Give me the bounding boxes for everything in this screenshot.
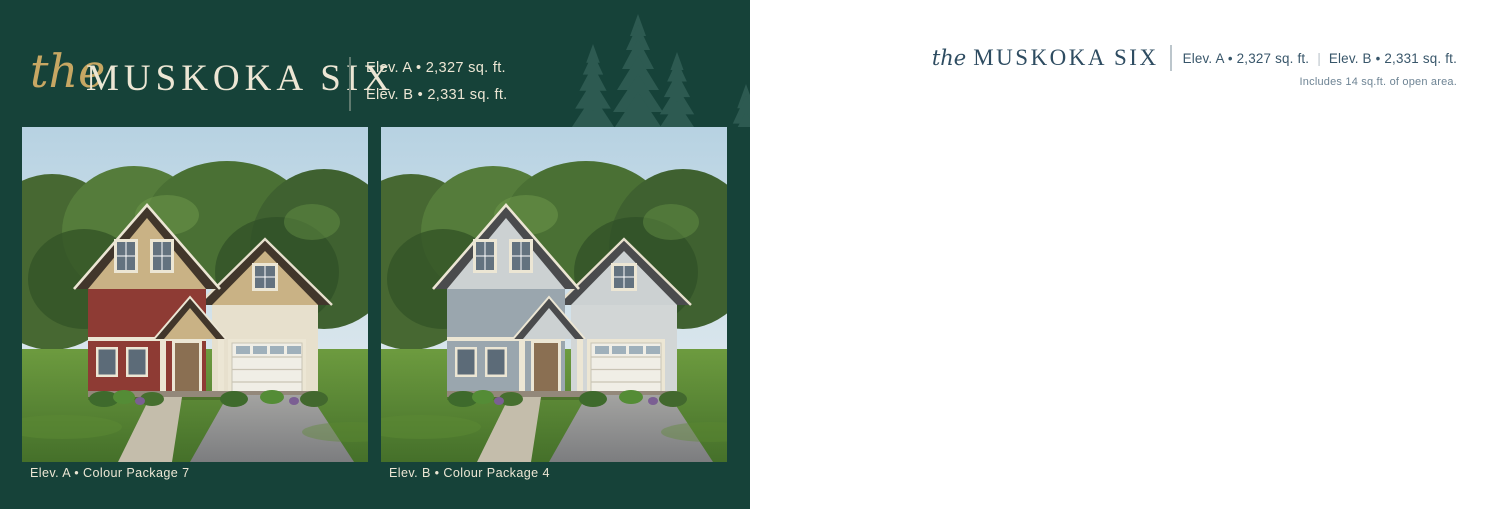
title-script-word: the [932, 46, 966, 70]
brochure-page: the MUSKOKA SIX Elev. A • 2,327 sq. ft. … [0, 0, 1500, 509]
elevation-a-caption: Elev. A • Colour Package 7 [30, 466, 190, 480]
header-divider [1170, 45, 1172, 71]
right-panel: the MUSKOKA SIX Elev. A • 2,327 sq. ft. … [750, 0, 1500, 509]
header-bar-divider: | [1317, 50, 1321, 66]
left-panel: the MUSKOKA SIX Elev. A • 2,327 sq. ft. … [0, 0, 750, 509]
elev-b-sqft: Elev. B • 2,331 sq. ft. [366, 82, 508, 109]
elevation-a-rendering [22, 127, 368, 462]
title-divider [349, 57, 351, 111]
elev-b-sqft: Elev. B • 2,331 sq. ft. [1329, 51, 1457, 66]
elev-a-sqft: Elev. A • 2,327 sq. ft. [1183, 51, 1310, 66]
elevation-sqft-list: Elev. A • 2,327 sq. ft. Elev. B • 2,331 … [366, 55, 508, 109]
page-title: MUSKOKA SIX [973, 45, 1158, 71]
open-area-note: Includes 14 sq.ft. of open area. [932, 76, 1457, 88]
elevation-b-caption: Elev. B • Colour Package 4 [389, 466, 550, 480]
elevation-b-rendering [381, 127, 727, 462]
right-header: the MUSKOKA SIX Elev. A • 2,327 sq. ft. … [932, 45, 1457, 88]
elev-a-sqft: Elev. A • 2,327 sq. ft. [366, 55, 508, 82]
pine-trees-decoration [555, 0, 750, 127]
